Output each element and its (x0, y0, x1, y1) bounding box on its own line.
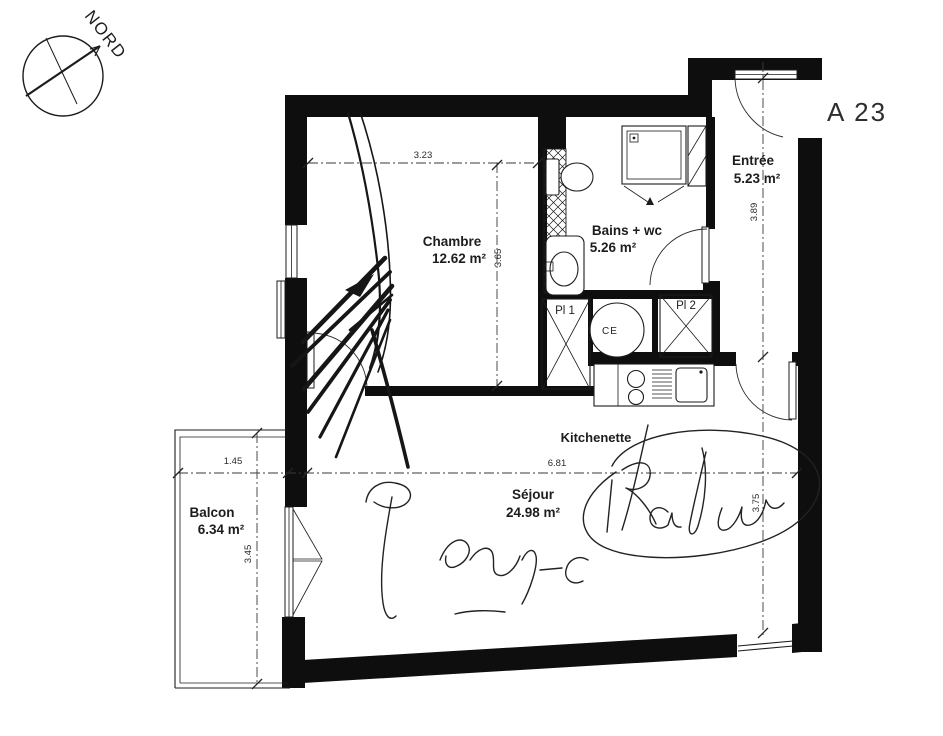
dim-sejour-width: 6.81 (548, 458, 567, 469)
washbasin-fixture (546, 236, 584, 295)
wall-segment (303, 634, 737, 683)
wall-segment (538, 117, 566, 149)
dim-chambre-width: 3.23 (414, 150, 433, 161)
wall-segment (652, 293, 658, 358)
floor-plan-drawing: 3.23 3.65 3.89 3.75 6.81 1.45 3.45 Chamb… (0, 0, 943, 736)
balcony-outline (175, 430, 290, 688)
sejour-door (736, 362, 796, 420)
kitchenette-label: Kitchenette (561, 430, 632, 445)
pl2-label: Pl 2 (676, 300, 696, 312)
unit-label: A 23 (827, 97, 887, 127)
floor-plan-page: 3.23 3.65 3.89 3.75 6.81 1.45 3.45 Chamb… (0, 0, 943, 736)
wall-segment (706, 117, 715, 229)
handwritten-signature-left (366, 482, 588, 618)
wall-segment (365, 386, 598, 396)
handwritten-scribble-chambre (292, 112, 408, 467)
window-chambre-1 (286, 225, 297, 278)
french-door-balcony (285, 507, 322, 617)
chambre-area: 12.62 m² (432, 251, 487, 266)
dim-sejour-depth: 3.75 (751, 494, 762, 513)
entree-area: 5.23 m² (734, 171, 781, 186)
dim-balcon-width: 1.45 (224, 456, 243, 467)
entrance-door (735, 70, 797, 137)
wall-segment (798, 138, 822, 652)
window-chambre-2 (277, 281, 285, 338)
pl1-label: Pl 1 (555, 305, 575, 317)
dim-chambre-depth: 3.65 (493, 249, 504, 268)
kitchenette-counter (594, 364, 714, 406)
window-sejour-bottom (738, 641, 793, 651)
water-heater-label: CE (602, 326, 618, 337)
sejour-area: 24.98 m² (506, 505, 561, 520)
dim-balcon-depth: 3.45 (243, 545, 254, 564)
balcon-label: Balcon (189, 505, 234, 520)
wall-segment (285, 95, 307, 225)
wall-segment (792, 621, 822, 653)
bains-area: 5.26 m² (590, 240, 637, 255)
dim-entree-depth: 3.89 (749, 203, 760, 222)
toilet-fixture (546, 159, 593, 195)
balcon-area: 6.34 m² (198, 522, 245, 537)
entree-label: Entrée (732, 153, 775, 168)
sejour-label: Séjour (512, 487, 555, 502)
bains-label: Bains + wc (592, 223, 663, 238)
chambre-label: Chambre (423, 234, 482, 249)
shower-fixture (622, 126, 686, 205)
technical-shaft (688, 126, 706, 186)
compass-icon: NORD (23, 7, 130, 116)
wall-segment (282, 617, 305, 688)
